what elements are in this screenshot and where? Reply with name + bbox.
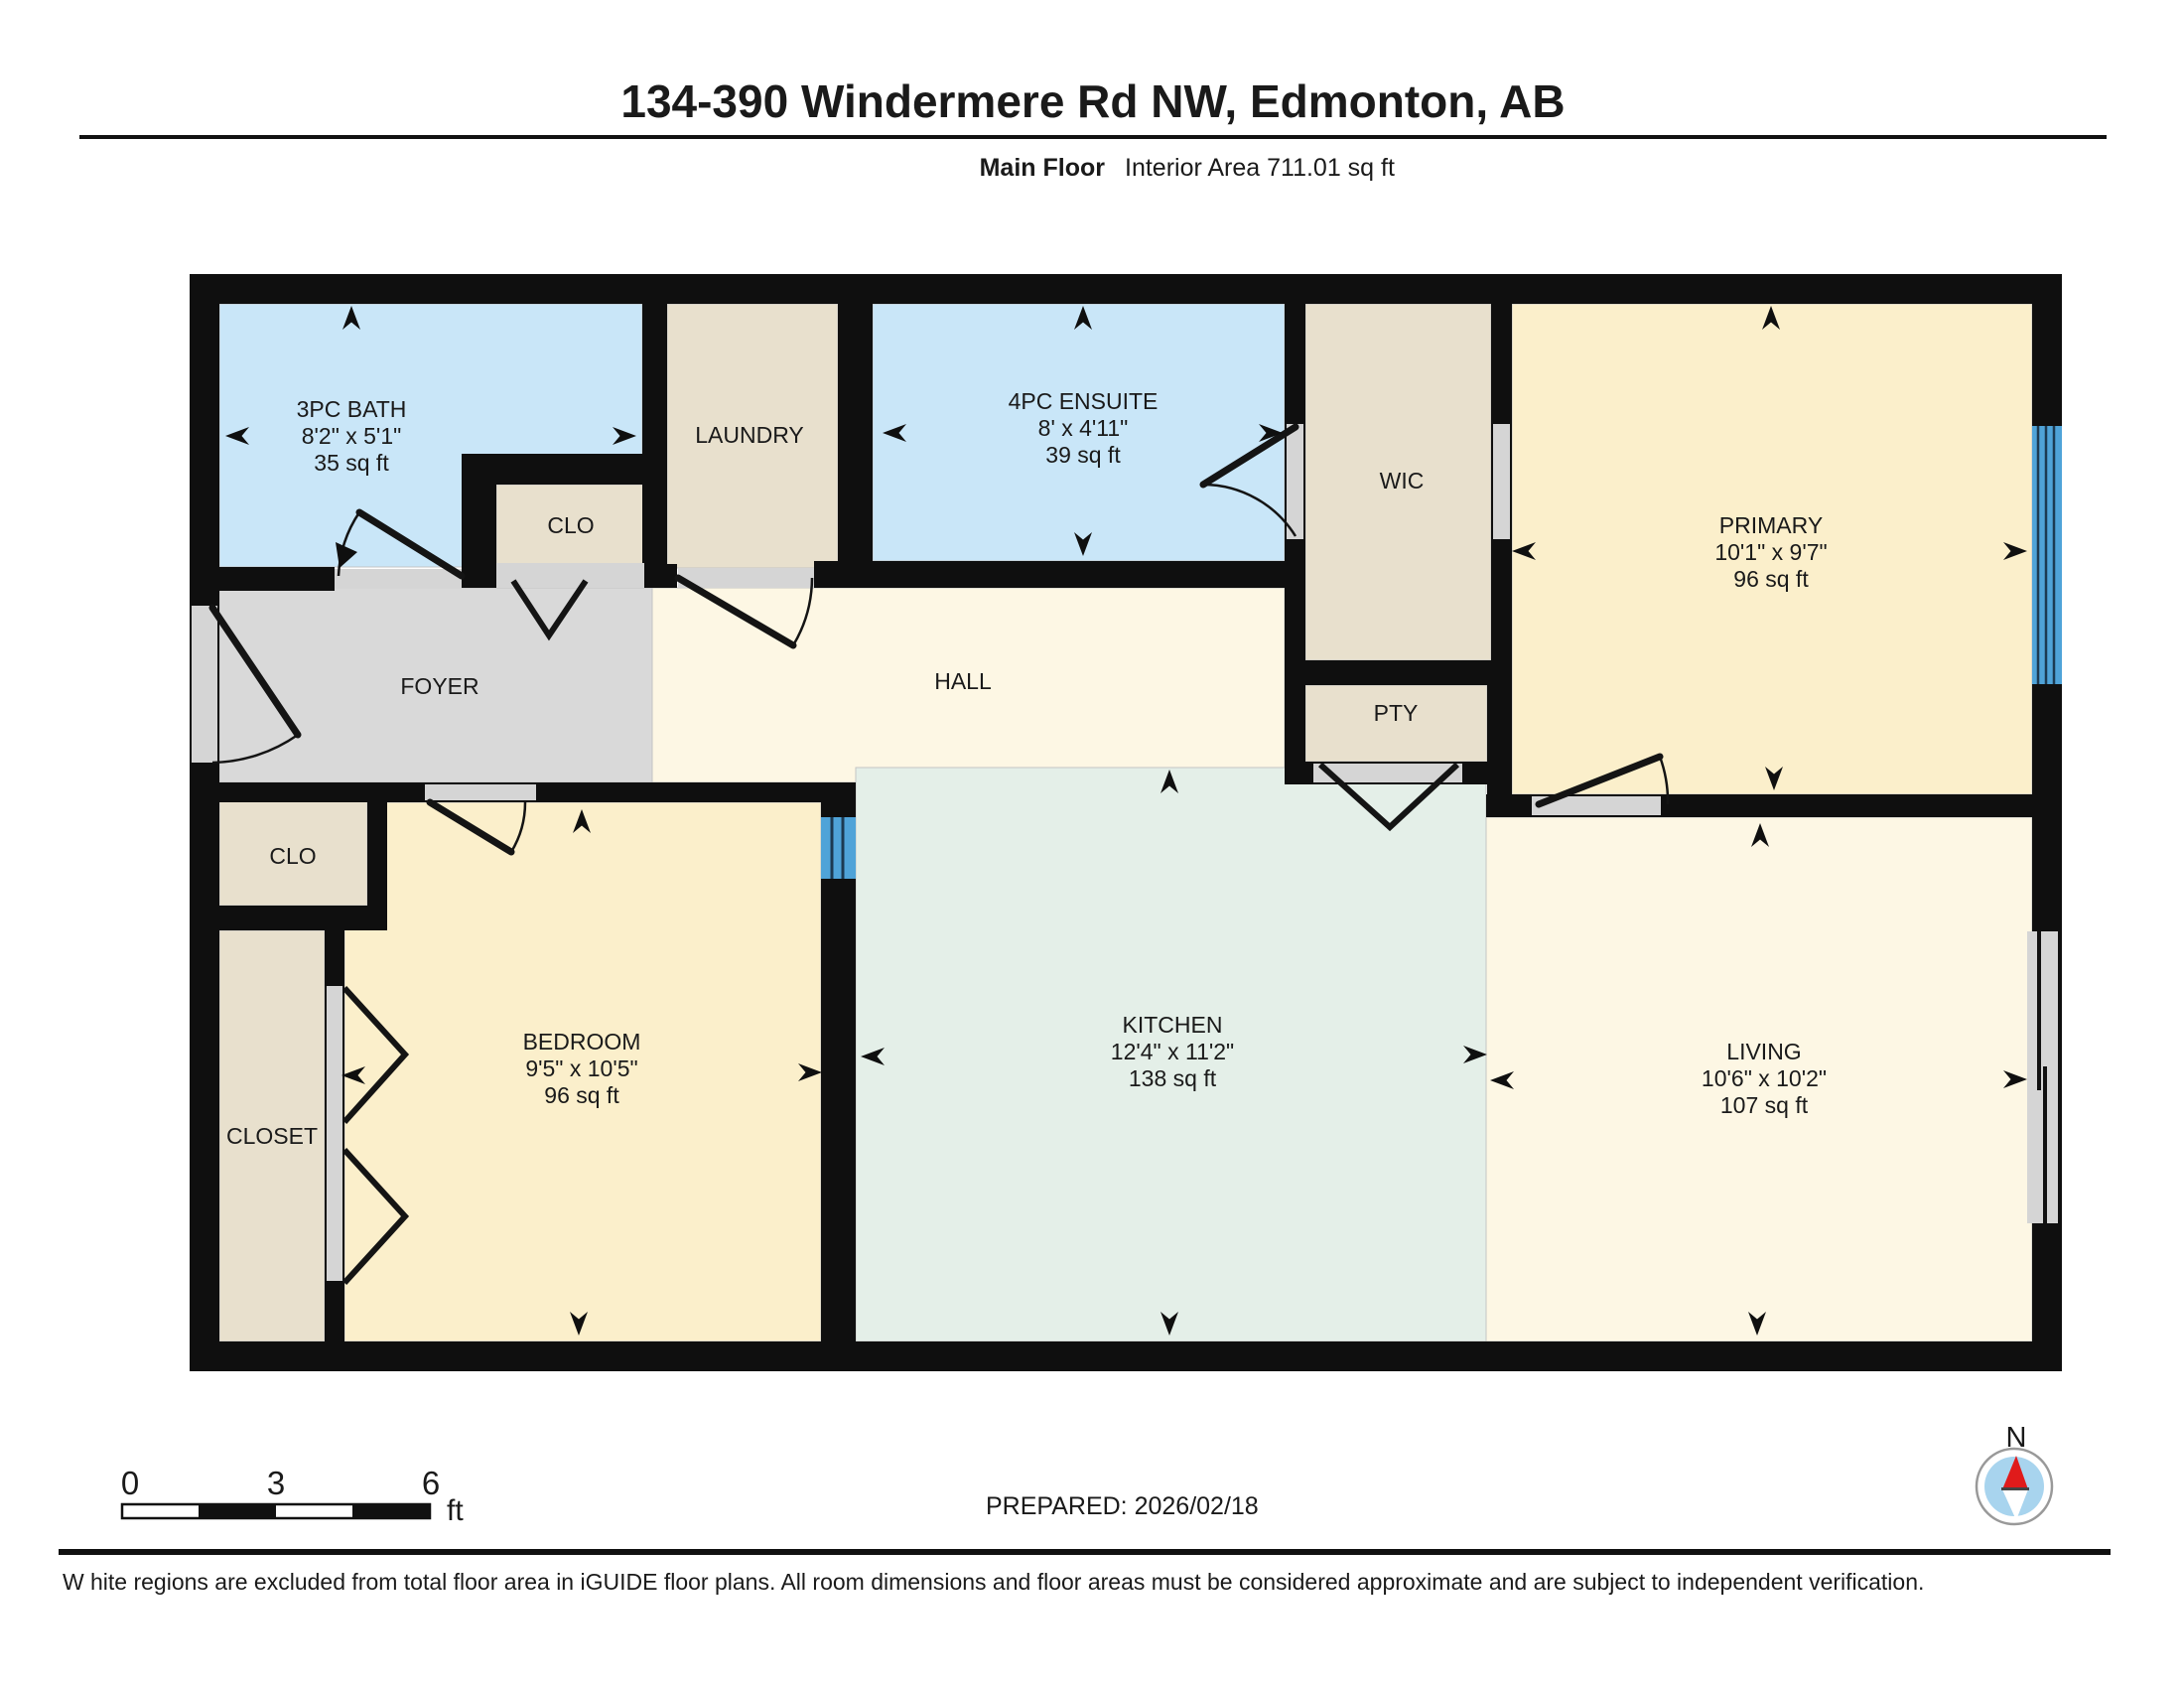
wic-primary-opening [1493,424,1510,539]
scale-unit-label: ft [447,1494,464,1527]
room-wic-label: WIC [1380,468,1425,493]
living-sliding-door-icon [2027,931,2058,1223]
scale-end-label: 6 [422,1465,440,1501]
header-rule [79,135,2107,139]
svg-text:PRIMARY: PRIMARY [1719,512,1823,538]
room-foyer-label: FOYER [400,673,478,699]
svg-text:9'5" x 10'5": 9'5" x 10'5" [525,1055,637,1081]
room-clo-upper-label: CLO [547,512,594,538]
room-closet-label: CLOSET [226,1123,318,1149]
svg-text:12'4" x 11'2": 12'4" x 11'2" [1111,1039,1234,1064]
svg-text:96 sq ft: 96 sq ft [544,1082,619,1108]
svg-text:35 sq ft: 35 sq ft [314,450,389,476]
scale-start-label: 0 [121,1465,139,1501]
svg-text:10'1" x 9'7": 10'1" x 9'7" [1714,539,1827,565]
disclaimer-text: hite regions are excluded from total flo… [90,1569,1924,1595]
disclaimer: W hite regions are excluded from total f… [63,1569,1924,1595]
svg-text:107 sq ft: 107 sq ft [1720,1092,1809,1118]
svg-text:138 sq ft: 138 sq ft [1129,1065,1217,1091]
footer-rule [59,1549,2111,1555]
svg-text:96 sq ft: 96 sq ft [1733,566,1809,592]
interior-area-label: Interior Area 711.01 sq ft [1125,154,1395,182]
svg-text:39 sq ft: 39 sq ft [1045,442,1121,468]
compass-icon: N [1977,1422,2052,1524]
svg-text:8'2" x 5'1": 8'2" x 5'1" [302,423,402,449]
primary-window-icon [2032,426,2062,684]
bedroom-window-icon [821,817,856,879]
room-laundry-label: LAUNDRY [695,422,804,448]
floor-label: Main Floor [980,154,1106,182]
svg-text:10'6" x 10'2": 10'6" x 10'2" [1702,1065,1827,1091]
bedroom-door-opening [425,784,536,800]
room-clo-lower-label: CLO [269,843,316,869]
svg-text:4PC ENSUITE: 4PC ENSUITE [1009,388,1159,414]
floor-plan-page: 134-390 Windermere Rd NW, Edmonton, AB M… [0,0,2184,1688]
scale-bar: 0 3 6 ft [121,1465,465,1527]
ensuite-wic-opening [1287,424,1303,539]
svg-text:8' x 4'11": 8' x 4'11" [1038,415,1129,441]
svg-text:3PC BATH: 3PC BATH [297,396,407,422]
room-hall-label: HALL [934,668,992,694]
entry-opening [192,606,217,763]
svg-text:BEDROOM: BEDROOM [523,1029,641,1055]
svg-text:KITCHEN: KITCHEN [1123,1012,1223,1038]
scale-mid-label: 3 [267,1465,285,1501]
disclaimer-first-letter: W [63,1569,84,1595]
svg-text:LIVING: LIVING [1726,1039,1801,1064]
closet-door-opening [327,986,342,1281]
page-title: 134-390 Windermere Rd NW, Edmonton, AB [620,75,1565,127]
prepared-date-label: PREPARED: 2026/02/18 [986,1492,1259,1520]
laundry-door-opening [678,568,814,588]
bath-door-opening [335,569,462,589]
room-kitchen-label: KITCHEN 12'4" x 11'2" 138 sq ft [1111,1012,1234,1091]
room-pty-label: PTY [1374,700,1419,726]
